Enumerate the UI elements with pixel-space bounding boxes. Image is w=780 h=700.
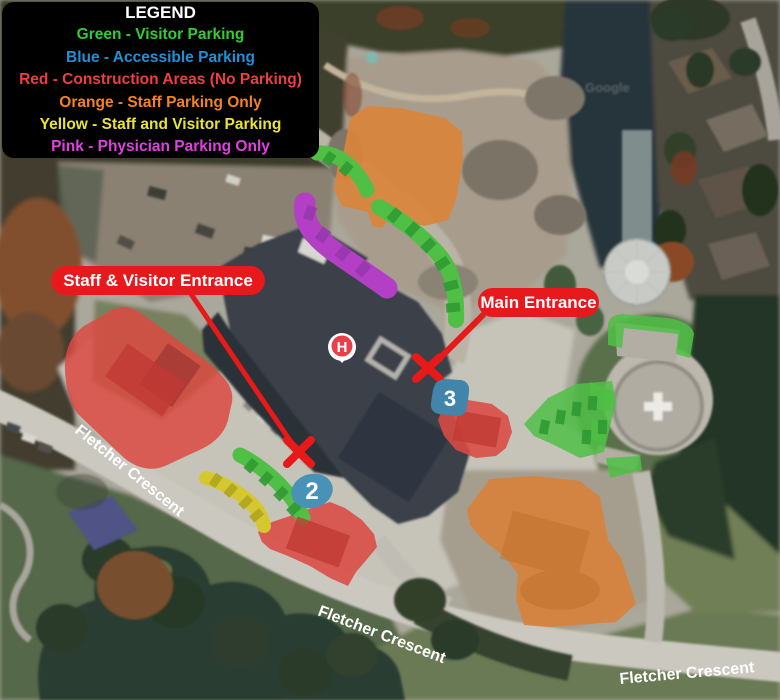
svg-text:Google: Google [585, 80, 630, 95]
svg-text:H: H [337, 339, 348, 356]
svg-text:2: 2 [305, 478, 318, 505]
svg-text:3: 3 [444, 386, 456, 411]
